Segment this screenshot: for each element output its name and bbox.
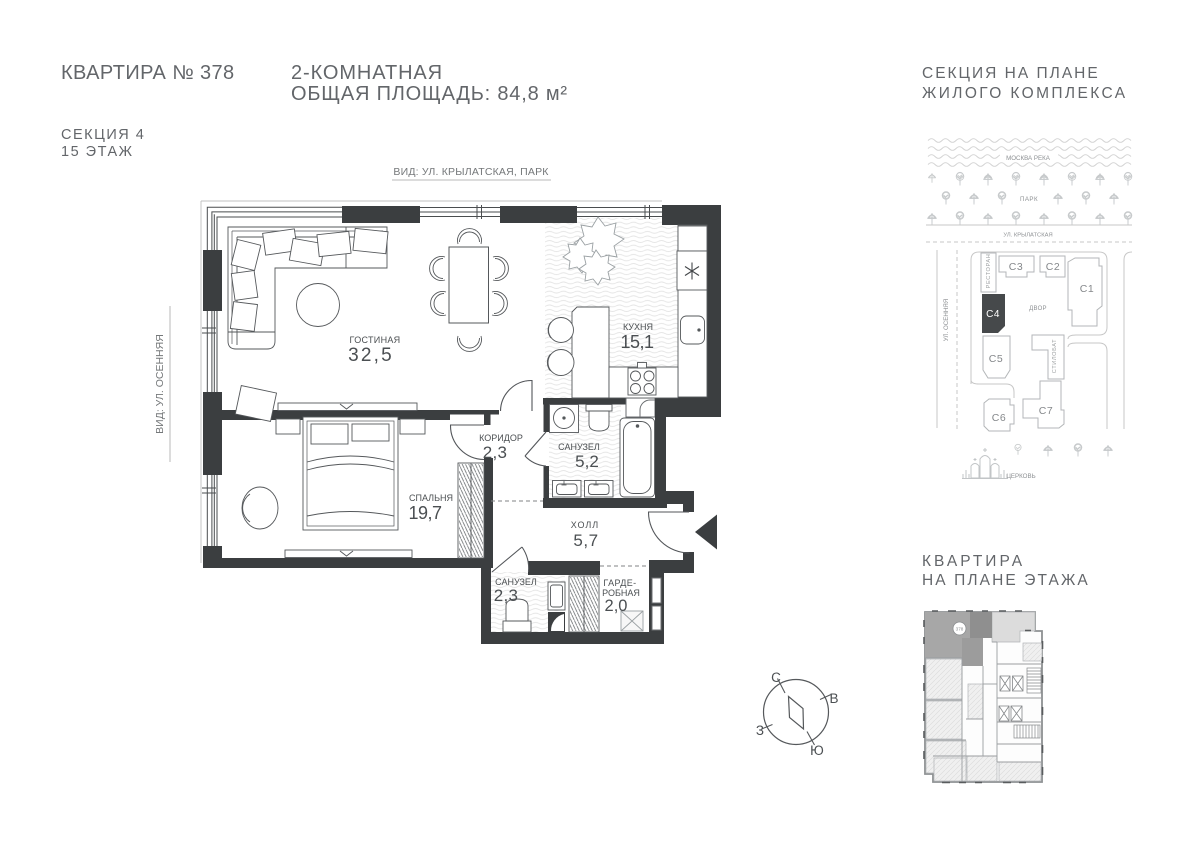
svg-text:НА ПЛАНЕ ЭТАЖА: НА ПЛАНЕ ЭТАЖА: [922, 572, 1090, 589]
svg-text:УЛ. КРЫЛАТСКАЯ: УЛ. КРЫЛАТСКАЯ: [1003, 233, 1052, 239]
svg-text:С5: С5: [989, 353, 1003, 365]
svg-text:2,3: 2,3: [483, 443, 508, 462]
svg-text:32,5: 32,5: [348, 345, 394, 366]
svg-text:С2: С2: [1046, 261, 1060, 273]
svg-text:ГАРДЕ-: ГАРДЕ-: [603, 578, 636, 588]
svg-text:СЕКЦИЯ 4: СЕКЦИЯ 4: [61, 127, 145, 143]
svg-text:КОРИДОР: КОРИДОР: [479, 433, 523, 443]
svg-text:2,0: 2,0: [605, 597, 628, 615]
svg-text:С1: С1: [1080, 283, 1094, 295]
svg-text:5,7: 5,7: [573, 531, 598, 550]
svg-text:5,2: 5,2: [575, 452, 599, 471]
svg-text:СПАЛЬНЯ: СПАЛЬНЯ: [409, 493, 453, 503]
svg-text:В: В: [829, 691, 838, 706]
svg-text:СТИЛОБАТ: СТИЛОБАТ: [1052, 339, 1058, 373]
svg-text:З: З: [756, 723, 764, 738]
svg-text:ХОЛЛ: ХОЛЛ: [571, 520, 599, 530]
svg-text:ЦЕРКОВЬ: ЦЕРКОВЬ: [1006, 473, 1035, 480]
svg-text:С3: С3: [1009, 261, 1023, 273]
svg-text:Ю: Ю: [810, 743, 824, 758]
svg-text:УЛ. ОСЕННЯЯ: УЛ. ОСЕННЯЯ: [943, 299, 950, 342]
svg-text:СЕКЦИЯ НА ПЛАНЕ: СЕКЦИЯ НА ПЛАНЕ: [922, 65, 1100, 82]
svg-text:С6: С6: [992, 412, 1006, 424]
svg-text:С4: С4: [986, 309, 1000, 320]
svg-text:ВИД: УЛ. КРЫЛАТСКАЯ, ПАРК: ВИД: УЛ. КРЫЛАТСКАЯ, ПАРК: [393, 166, 549, 178]
svg-text:ДВОР: ДВОР: [1029, 306, 1047, 312]
svg-text:МОСКВА РЕКА: МОСКВА РЕКА: [1006, 155, 1051, 162]
svg-text:РЕСТОРАН: РЕСТОРАН: [986, 254, 992, 289]
svg-text:САНУЗЕЛ: САНУЗЕЛ: [558, 442, 600, 452]
svg-text:КУХНЯ: КУХНЯ: [623, 322, 653, 332]
svg-text:378: 378: [956, 627, 964, 632]
svg-text:КВАРТИРА: КВАРТИРА: [922, 553, 1025, 570]
svg-text:С7: С7: [1039, 405, 1053, 417]
svg-text:ГОСТИНАЯ: ГОСТИНАЯ: [350, 335, 401, 345]
svg-text:15,1: 15,1: [620, 332, 654, 352]
svg-text:ВИД: УЛ. ОСЕННЯЯ: ВИД: УЛ. ОСЕННЯЯ: [154, 334, 166, 434]
svg-text:ОБЩАЯ ПЛОЩАДЬ: 84,8 м²: ОБЩАЯ ПЛОЩАДЬ: 84,8 м²: [291, 83, 568, 105]
svg-text:2-КОМНАТНАЯ: 2-КОМНАТНАЯ: [291, 62, 443, 84]
svg-text:С: С: [771, 670, 781, 685]
svg-text:19,7: 19,7: [408, 503, 442, 523]
svg-text:ПАРК: ПАРК: [1020, 196, 1038, 203]
svg-text:15 ЭТАЖ: 15 ЭТАЖ: [61, 144, 134, 160]
svg-text:КВАРТИРА № 378: КВАРТИРА № 378: [61, 62, 235, 84]
svg-text:ЖИЛОГО КОМПЛЕКСА: ЖИЛОГО КОМПЛЕКСА: [922, 85, 1128, 102]
svg-text:2,3: 2,3: [494, 586, 519, 605]
